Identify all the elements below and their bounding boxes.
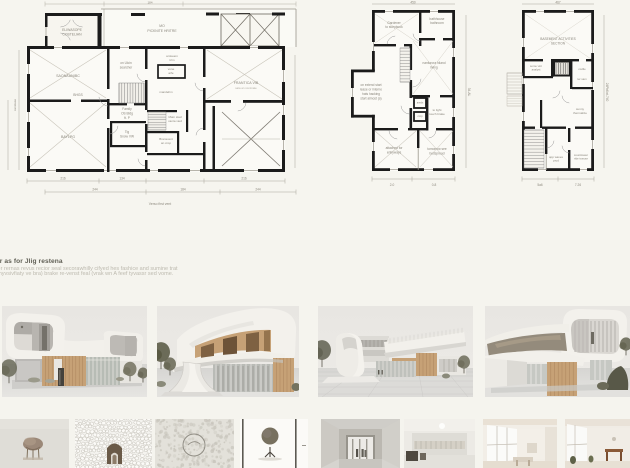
svg-text:prod: prod [553,159,559,163]
svg-text:216: 216 [241,177,247,181]
svg-text:244: 244 [92,188,98,192]
svg-text:crop: crop [417,114,423,118]
svg-text:arfe: arfe [168,71,174,75]
svg-text:PICKNITE HRITRE: PICKNITE HRITRE [147,29,177,33]
svg-text:to storybook: to storybook [385,25,403,29]
svg-text:canstase: canstase [13,99,17,111]
svg-text:bathroom: bathroom [430,21,444,25]
svg-text:184: 184 [147,1,152,5]
svg-text:FRANTICA VIB: FRANTICA VIB [234,81,259,85]
svg-text:ritie tseuse: ritie tseuse [574,157,588,161]
svg-text:nanturora hiland: nanturora hiland [422,61,445,65]
svg-text:an crop: an crop [161,141,171,145]
svg-text:touch brake: touch brake [429,112,445,116]
svg-text:ter sam: ter sam [577,77,587,81]
svg-text:24PbKnt-740: 24PbKnt-740 [605,83,609,102]
svg-text:244: 244 [255,188,261,192]
svg-text:trim: trim [170,58,175,62]
svg-text:ELIWASOPE: ELIWASOPE [62,28,83,32]
svg-text:BASEMENT ACTIVITIES: BASEMENT ACTIVITIES [540,37,576,41]
svg-text:MO: MO [159,24,165,28]
svg-text:start almost (a): start almost (a) [360,97,381,101]
svg-text:7.26: 7.26 [575,183,581,187]
svg-text:COSTELIAN: COSTELIAN [62,33,82,37]
svg-text:5a6: 5a6 [537,183,543,187]
svg-text:0-8: 0-8 [432,183,437,187]
svg-text:34-AL: 34-AL [467,88,471,97]
svg-text:mandehm: mandehm [159,90,173,94]
svg-text:ft. P: ft. P [124,116,130,120]
svg-text:bedspread: bedspread [429,152,444,156]
svg-text:on Ulcin: on Ulcin [120,61,132,65]
svg-text:BAYLPG: BAYLPG [61,135,75,139]
svg-text:analyst: analyst [532,68,541,72]
svg-text:Tig: Tig [125,130,130,134]
svg-text:Family: Family [122,107,132,111]
svg-text:attached for: attached for [386,146,404,150]
svg-text:Verso first vent: Verso first vent [149,202,171,206]
svg-text:134: 134 [119,177,125,181]
svg-text:SAONAUNIBC: SAONAUNIBC [56,74,80,78]
svg-text:vanta vied: vanta vied [168,119,182,123]
svg-text:codile: codile [578,67,586,71]
svg-text:on extend start: on extend start [360,83,381,87]
svg-text:Snow VW: Snow VW [120,135,134,139]
svg-text:450: 450 [410,0,416,4]
svg-text:areds: areds [417,101,424,105]
svg-text:216: 216 [60,177,66,181]
svg-text:lease or interne: lease or interne [360,88,382,92]
svg-text:SECTION: SECTION [551,42,566,46]
svg-text:184: 184 [180,188,186,192]
svg-text:tomorrow see: tomorrow see [427,147,447,151]
svg-text:hats hacking: hats hacking [362,92,380,96]
svg-text:searcher: searcher [120,66,133,70]
svg-text:entryways: entryways [387,151,402,155]
svg-text:sata an nominate: sata an nominate [235,86,257,90]
svg-text:BHGS: BHGS [73,93,83,97]
svg-text:2-0: 2-0 [390,183,395,187]
svg-text:467: 467 [555,0,561,4]
svg-text:living: living [430,66,437,70]
svg-text:OS Bldg: OS Bldg [121,112,133,116]
svg-text:thermalize: thermalize [573,111,587,115]
